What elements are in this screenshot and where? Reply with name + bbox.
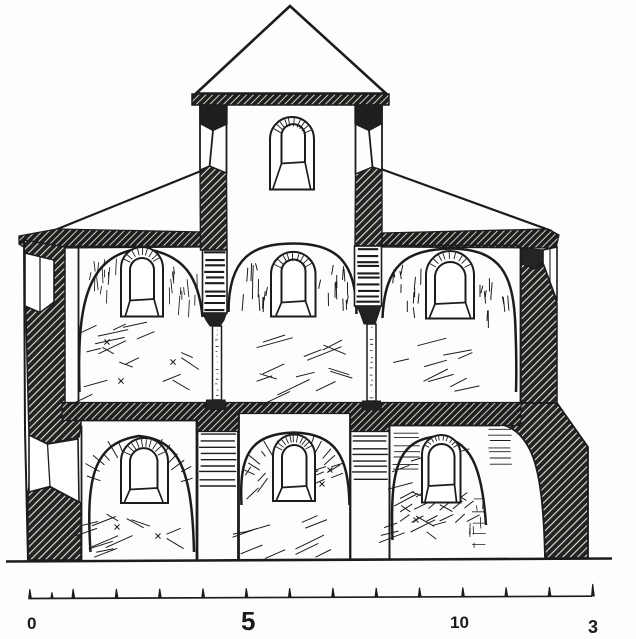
svg-text:3: 3: [588, 617, 598, 637]
svg-text:5: 5: [241, 606, 255, 636]
svg-text:10: 10: [450, 613, 469, 632]
svg-text:0: 0: [27, 614, 36, 633]
